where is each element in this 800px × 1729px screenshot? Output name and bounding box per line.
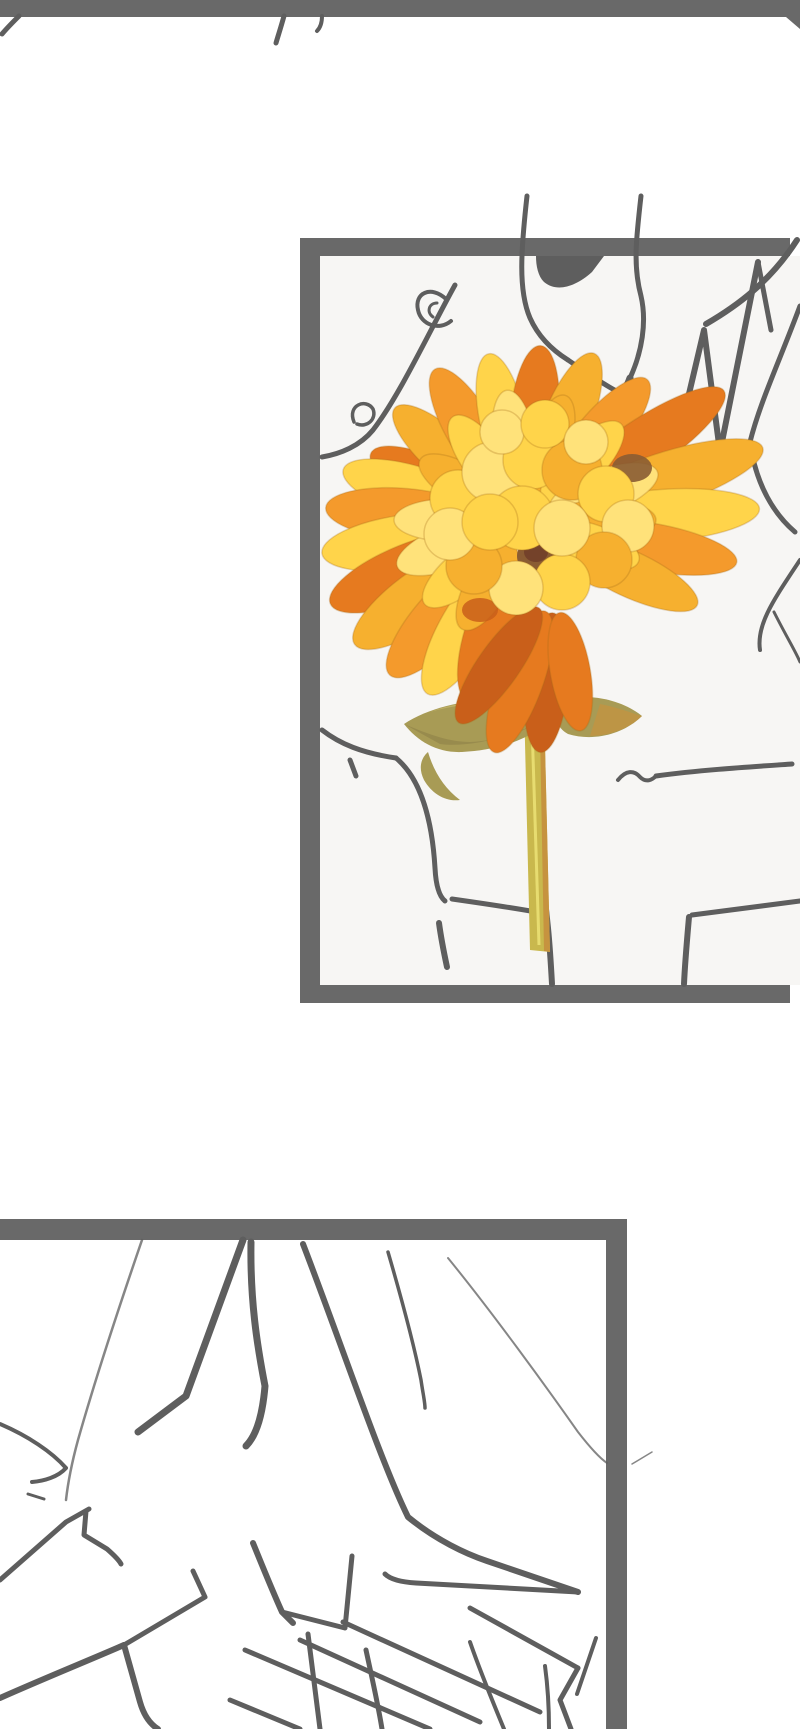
stroke-tip-a — [276, 16, 284, 43]
previous-panel-bottom-edge — [0, 0, 800, 43]
panel-1 — [300, 196, 800, 1003]
panel-2-sketch — [0, 1240, 652, 1729]
top-edge-right-wedge — [786, 17, 800, 29]
panel-2 — [0, 1219, 652, 1729]
top-left-stroke-tip — [2, 16, 19, 34]
comic-page — [0, 0, 800, 1729]
panel-2-frame — [0, 1219, 627, 1729]
top-edge-bar — [0, 0, 800, 17]
comic-page-canvas — [0, 0, 800, 1729]
stroke-tip-b — [317, 16, 322, 31]
